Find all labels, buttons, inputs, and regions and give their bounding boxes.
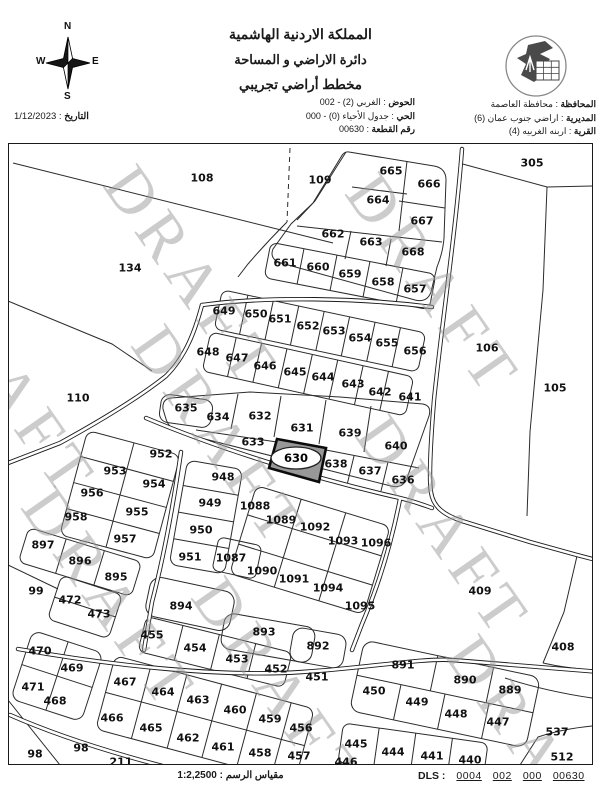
parcel-label: 441 [421, 750, 444, 763]
parcel-label: 636 [392, 474, 415, 487]
parcel-label: 451 [306, 671, 329, 684]
parcel-label: 894 [170, 600, 193, 613]
parcel-label: 655 [376, 337, 399, 350]
compass-s: S [64, 91, 71, 102]
parcel-label: 647 [226, 352, 249, 365]
dls-value-1: 0004 [456, 770, 481, 782]
parcel-label: 458 [249, 747, 272, 760]
dls-logo [499, 34, 573, 105]
parcel-label: 662 [322, 228, 345, 241]
parcel-label: 953 [104, 465, 127, 478]
scale-label: مقياس الرسم [226, 770, 284, 781]
parcel-label: 659 [339, 268, 362, 281]
parcel-label: 409 [469, 585, 492, 598]
directorate-label: المديرية [566, 113, 596, 123]
parcel-label: 466 [101, 712, 124, 725]
parcel-label: 305 [521, 157, 544, 170]
parcel-label: 889 [499, 684, 522, 697]
parcel-label: 452 [265, 663, 288, 676]
plot-number-label: رقم القطعة [372, 124, 415, 134]
parcel-label: 957 [114, 533, 137, 546]
parcel-label: 650 [245, 308, 268, 321]
parcel-label: 457 [288, 750, 311, 763]
parcel-label: 1094 [313, 582, 344, 595]
parcel-label: 469 [61, 662, 84, 675]
parcel-label: 896 [69, 555, 92, 568]
basin-row: الحوض : الغربي (2) - 002 [306, 96, 415, 110]
parcel-label: 98 [27, 748, 42, 761]
date-label: التاريخ [64, 111, 89, 122]
parcel-label: 651 [269, 313, 292, 326]
plot-number-value: 00630 [339, 124, 364, 134]
cadastral-map: DRAFT DRAFT DRAFT DRAFT DRAFT DRAFT DRAF… [8, 143, 593, 765]
parcel-label: 1093 [328, 535, 359, 548]
parcel-labels-layer: 630 108109305134665666664667662663668661… [9, 144, 592, 764]
parcel-label: 660 [307, 261, 330, 274]
parcel-label: 950 [190, 524, 213, 537]
parcel-label: 656 [404, 345, 427, 358]
parcel-label: 1092 [300, 521, 331, 534]
parcel-label: 461 [212, 741, 235, 754]
parcel-label: 663 [360, 236, 383, 249]
parcel-label: 635 [175, 402, 198, 415]
parcel-label: 641 [399, 391, 422, 404]
parcel-label: 634 [207, 411, 230, 424]
parcel-label: 666 [418, 178, 441, 191]
parcel-label: 639 [339, 427, 362, 440]
parcel-label: 134 [119, 262, 142, 275]
basin-value: الغربي (2) - 002 [320, 97, 381, 107]
parcel-label: 448 [445, 708, 468, 721]
parcel-label: 105 [544, 382, 567, 395]
compass-rose: N E S W [38, 25, 98, 105]
cadastral-plan-document: المملكة الاردنية الهاشمية دائرة الاراضي … [0, 0, 601, 797]
parcel-label: 645 [284, 366, 307, 379]
village-value: اربنه الغربيه (4) [509, 126, 567, 136]
district-label: الحي [396, 111, 415, 121]
parcel-label: 512 [551, 751, 574, 764]
compass-e: E [92, 56, 99, 67]
parcel-label: 459 [259, 713, 282, 726]
parcel-label: 108 [191, 172, 214, 185]
parcel-label: 106 [476, 342, 499, 355]
parcel-label: 445 [345, 738, 368, 751]
parcel-label: 956 [81, 487, 104, 500]
parcel-label: 446 [335, 756, 358, 766]
parcel-label: 664 [367, 194, 390, 207]
parcel-label: 462 [177, 732, 200, 745]
parcel-label: 471 [22, 681, 45, 694]
basin-label: الحوض [388, 97, 415, 107]
parcel-label: 1095 [345, 600, 376, 613]
parcel-label: 638 [325, 458, 348, 471]
village-row: القرية : اربنه الغربيه (4) [474, 125, 596, 139]
parcel-label: 895 [105, 571, 128, 584]
parcel-label: 465 [140, 722, 163, 735]
directorate-row: المديرية : اراضي جنوب عمان (6) [474, 112, 596, 126]
parcel-label: 454 [184, 642, 207, 655]
scale-value: 1:2,2500 [177, 770, 216, 781]
parcel-label: 1088 [240, 500, 271, 513]
parcel-label: 633 [242, 436, 265, 449]
parcel-label: 99 [28, 585, 43, 598]
parcel-label: 948 [212, 471, 235, 484]
parcel-label: 440 [459, 754, 482, 766]
parcel-label: 665 [380, 165, 403, 178]
parcel-label: 1096 [361, 537, 392, 550]
parcel-label: 649 [213, 305, 236, 318]
parcel-label: 447 [487, 716, 510, 729]
parcel-label: 648 [197, 346, 220, 359]
parcel-label: 661 [274, 257, 297, 270]
parcel-label: 949 [199, 497, 222, 510]
parcel-label: 460 [224, 704, 247, 717]
parcel-label: 470 [29, 645, 52, 658]
parcel-label: 464 [152, 686, 175, 699]
parcel-label: 657 [404, 283, 427, 296]
parcel-label: 890 [454, 674, 477, 687]
district-row: الحي : جدول الأحياء (0) - 000 [306, 110, 415, 124]
parcel-label: 467 [114, 676, 137, 689]
parcel-label: 537 [546, 726, 569, 739]
parcel-label: 98 [73, 742, 88, 755]
parcel-label: 646 [254, 360, 277, 373]
date-value: 1/12/2023 [14, 111, 56, 122]
parcel-label: 1090 [247, 565, 278, 578]
parcel-label: 631 [291, 422, 314, 435]
parcel-label: 658 [372, 276, 395, 289]
parcel-label: 892 [307, 640, 330, 653]
parcel-label: 632 [249, 410, 272, 423]
highlighted-parcel-label: 630 [284, 451, 308, 465]
parcel-label: 456 [290, 722, 313, 735]
parcel-label: 444 [382, 746, 405, 759]
dls-logo-icon [499, 34, 573, 100]
parcel-label: 1091 [279, 573, 310, 586]
dls-row: DLS :000400200000630 [418, 770, 585, 782]
parcel-label: 667 [411, 215, 434, 228]
dls-value-4: 00630 [553, 770, 585, 782]
parcel-label: 891 [392, 659, 415, 672]
parcel-label: 954 [143, 478, 166, 491]
parcel-label: 110 [67, 392, 90, 405]
district-value: جدول الأحياء (0) - 000 [306, 111, 389, 121]
parcel-label: 211 [110, 756, 133, 766]
parcel-label: 644 [312, 371, 335, 384]
parcel-label: 453 [226, 653, 249, 666]
parcel-label: 642 [369, 386, 392, 399]
directorate-value: اراضي جنوب عمان (6) [474, 113, 558, 123]
parcel-label: 473 [88, 608, 111, 621]
parcel-label: 109 [309, 174, 332, 187]
parcel-label: 955 [126, 506, 149, 519]
parcel-label: 640 [385, 440, 408, 453]
dls-label: DLS : [418, 770, 445, 782]
dls-value-2: 002 [493, 770, 512, 782]
parcel-label: 958 [65, 511, 88, 524]
scale-row: مقياس الرسم : 1:2,2500 [0, 770, 461, 781]
parcel-label: 1089 [266, 514, 297, 527]
parcel-label: 893 [253, 626, 276, 639]
village-label: القرية [574, 126, 596, 136]
parcel-label: 653 [323, 325, 346, 338]
parcel-label: 463 [187, 694, 210, 707]
parcel-label: 472 [59, 594, 82, 607]
parcel-label: 637 [359, 465, 382, 478]
dls-value-3: 000 [523, 770, 542, 782]
parcel-label: 408 [552, 641, 575, 654]
plot-number-row: رقم القطعة : 00630 [306, 123, 415, 137]
parcel-label: 1087 [216, 552, 247, 565]
parcel-label: 654 [349, 332, 372, 345]
parcel-label: 652 [297, 320, 320, 333]
parcel-label: 449 [406, 696, 429, 709]
parcel-label: 643 [342, 378, 365, 391]
plot-info-block: الحوض : الغربي (2) - 002 الحي : جدول الأ… [306, 96, 415, 137]
date-row: التاريخ : 1/12/2023 [14, 111, 89, 122]
parcel-label: 952 [150, 448, 173, 461]
parcel-label: 897 [32, 539, 55, 552]
parcel-label: 468 [44, 695, 67, 708]
parcel-label: 455 [141, 629, 164, 642]
parcel-label: 450 [363, 685, 386, 698]
parcel-label: 668 [402, 246, 425, 259]
compass-w: W [36, 56, 45, 67]
compass-n: N [64, 21, 71, 32]
parcel-label: 951 [179, 551, 202, 564]
